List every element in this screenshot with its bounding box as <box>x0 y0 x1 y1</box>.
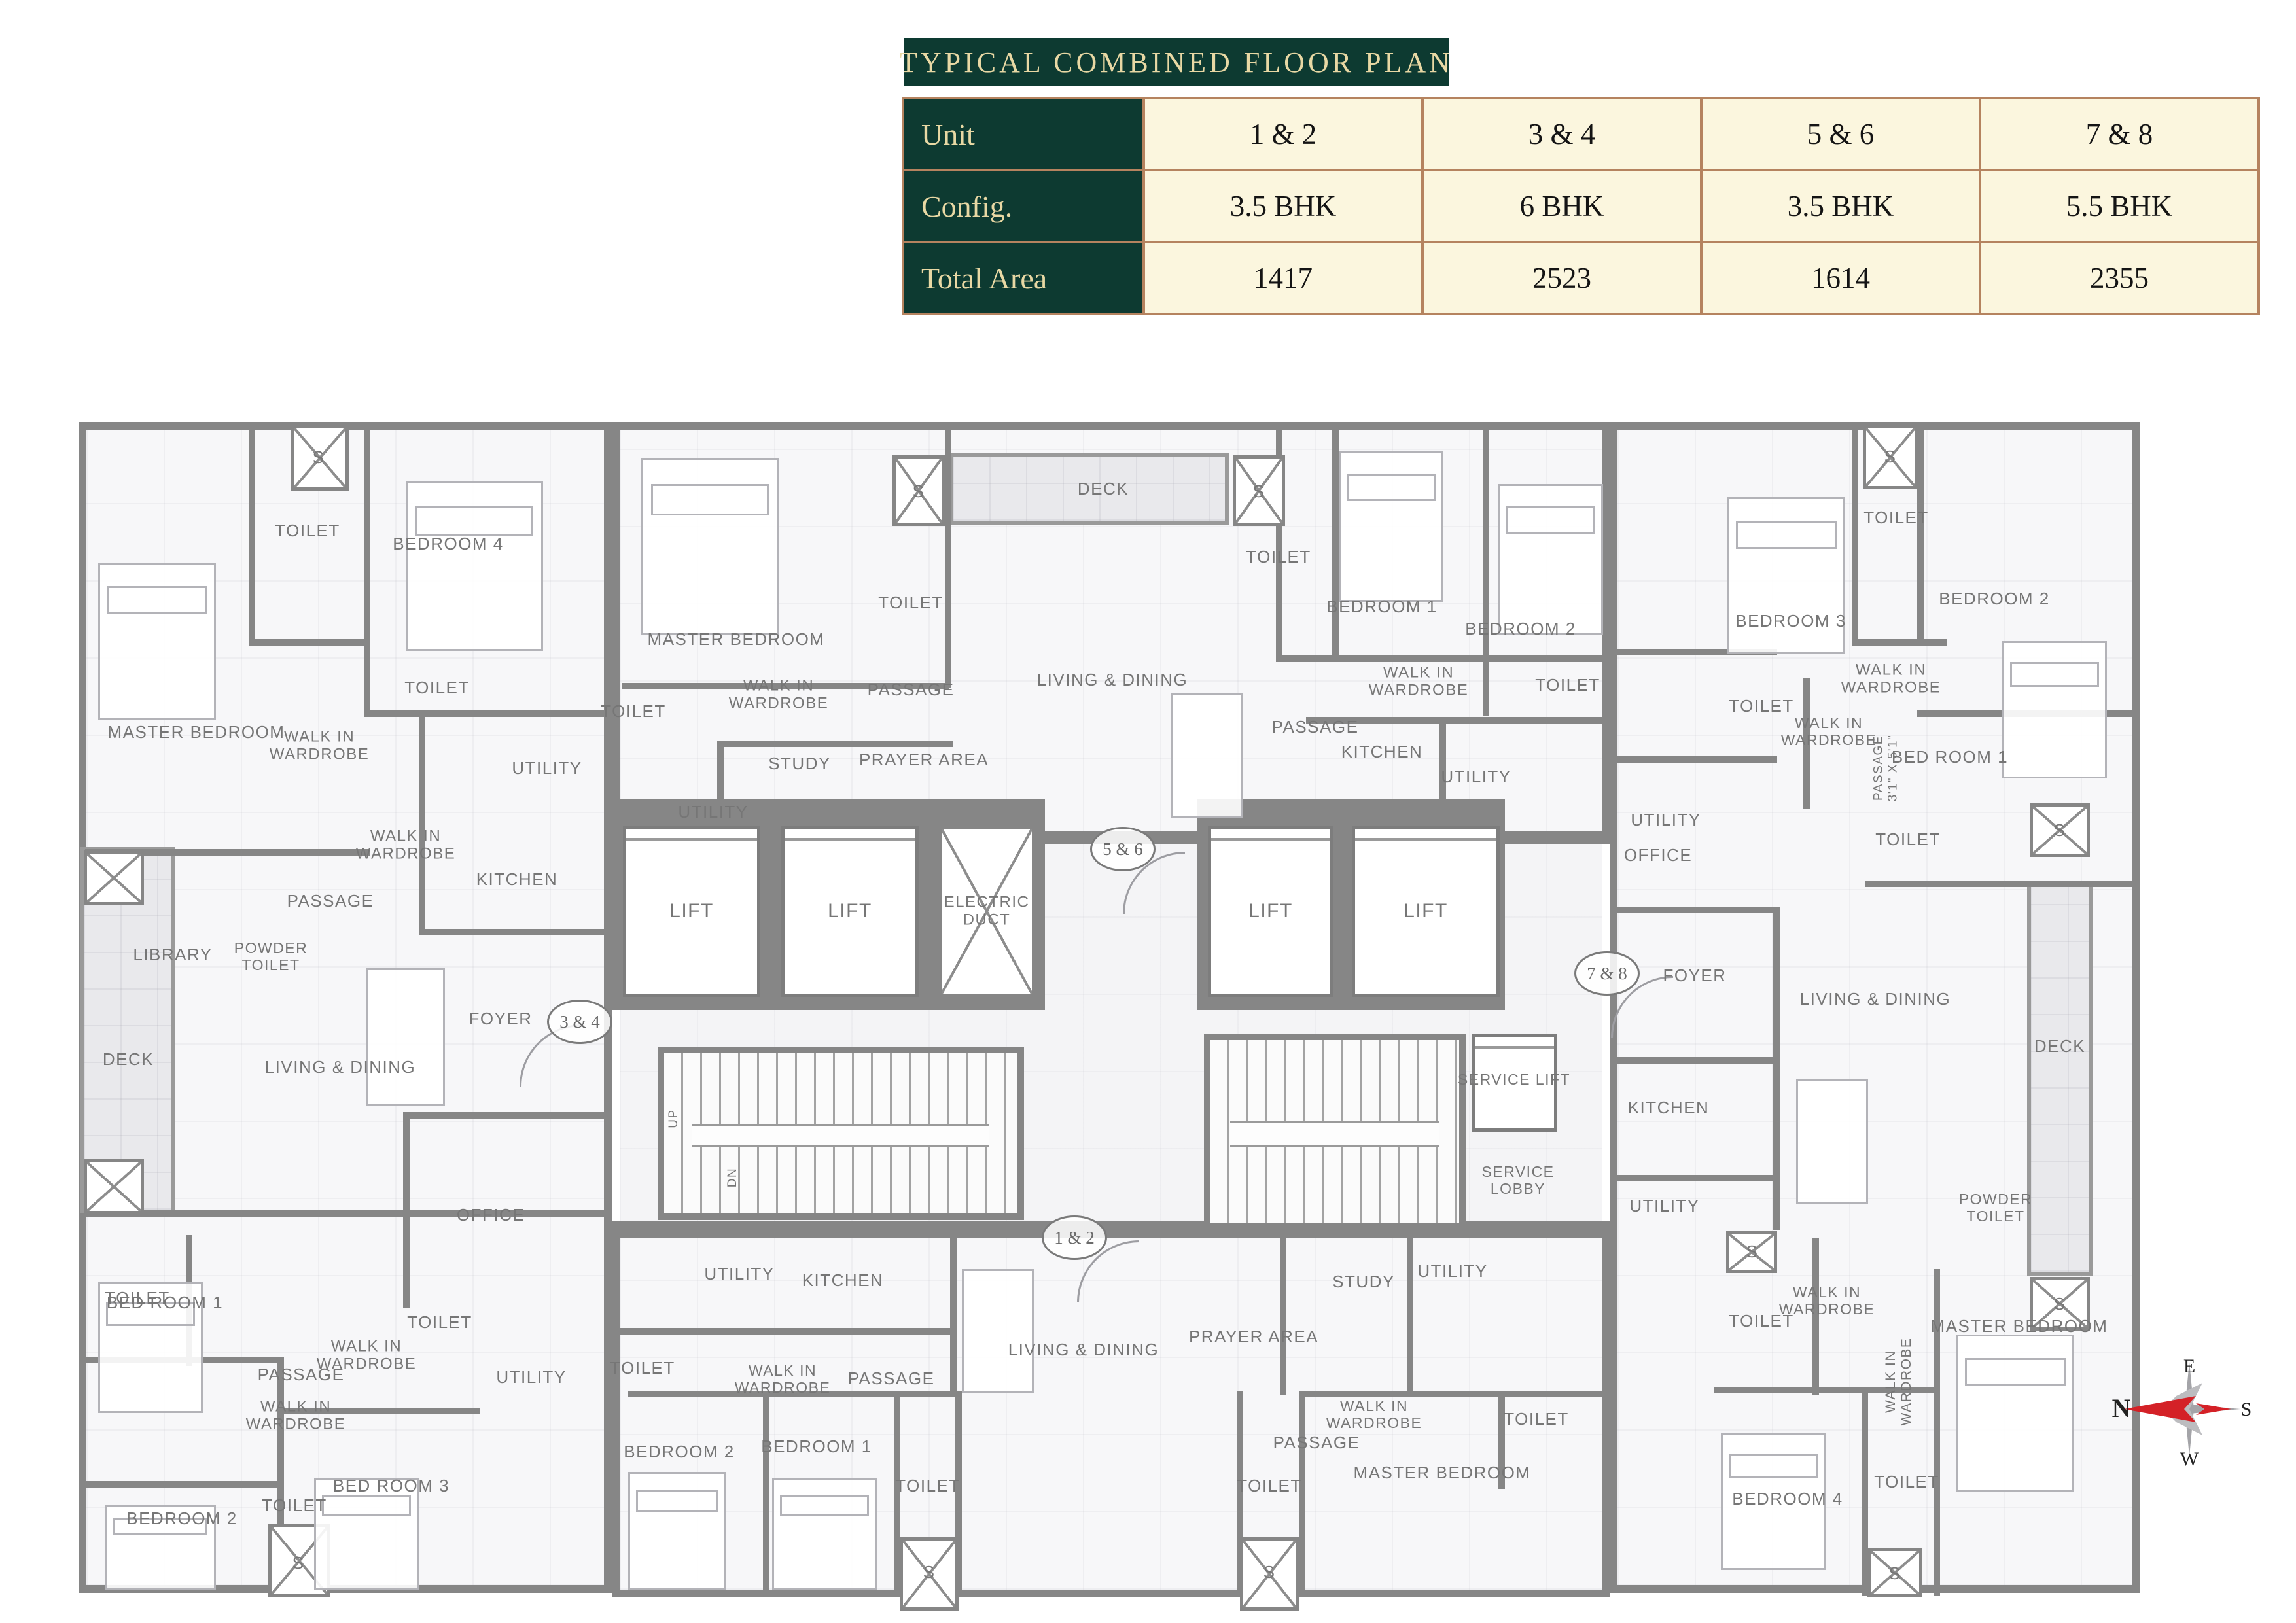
config-5-6: 3.5 BHK <box>1701 170 1980 242</box>
room-label: WALK IN WARDROBE <box>729 677 828 713</box>
dining-table <box>1171 693 1243 818</box>
room-label: PASSAGE <box>1272 718 1359 737</box>
wall <box>419 717 425 935</box>
wall <box>1852 639 1947 646</box>
room-label: LIVING & DINING <box>1800 990 1951 1009</box>
room-label: S <box>913 482 925 502</box>
room-label: UTILITY <box>1631 811 1701 830</box>
room-label: WALK IN WARDROBE <box>1883 1338 1915 1426</box>
room-label: BEDROOM 1 <box>1326 597 1438 617</box>
wall <box>1483 430 1489 716</box>
unit-entry-tag: 3 & 4 <box>547 1000 612 1044</box>
wall <box>612 1328 955 1335</box>
room-label: WALK IN WARDROBE <box>270 728 369 764</box>
room-label: POWDER TOILET <box>1959 1191 2033 1225</box>
service-shaft <box>84 1159 144 1214</box>
service-shaft <box>84 850 144 905</box>
room-label: MASTER BEDROOM <box>1931 1317 2108 1336</box>
wall <box>717 741 953 747</box>
room-label: BEDROOM 4 <box>1732 1490 1843 1509</box>
bed <box>641 458 779 635</box>
wall <box>403 1112 612 1119</box>
wall <box>1610 756 1777 763</box>
bed <box>1498 484 1603 635</box>
area-3-4: 2523 <box>1422 242 1701 314</box>
wall <box>1299 1391 1610 1397</box>
config-1-2: 3.5 BHK <box>1144 170 1422 242</box>
room-label: MASTER BEDROOM <box>1354 1463 1531 1483</box>
room-label: S <box>1746 1242 1759 1262</box>
room-label: ELECTRIC DUCT <box>944 894 1030 930</box>
room-label: TOILET <box>1729 697 1794 716</box>
room-label: TOILET <box>1535 676 1600 695</box>
room-label: TOILET <box>1237 1476 1302 1496</box>
wall <box>1773 907 1780 1230</box>
room-label: OFFICE <box>457 1206 525 1225</box>
room-label: TOILET <box>1504 1410 1569 1429</box>
room-label: KITCHEN <box>802 1271 884 1291</box>
room-label: WALK IN WARDROBE <box>1369 664 1468 700</box>
room-label: TOILET <box>407 1313 472 1333</box>
room-label: DN <box>726 1168 740 1187</box>
room-label: FOYER <box>1663 966 1726 986</box>
room-label: PASSAGE <box>848 1369 935 1389</box>
wall <box>364 710 612 717</box>
room-label: DECK <box>2034 1037 2085 1056</box>
room-label: TOILET <box>1863 508 1929 528</box>
staircase <box>1204 1034 1466 1230</box>
room-label: WALK IN WARDROBE <box>1841 661 1941 697</box>
unit-7-8: 7 & 8 <box>1980 98 2259 170</box>
room-label: UTILITY <box>704 1265 774 1284</box>
room-label: S <box>2054 1295 2066 1314</box>
room-label: LIFT <box>1248 900 1293 922</box>
area-7-8: 2355 <box>1980 242 2259 314</box>
wall <box>1332 430 1339 662</box>
room-label: LIVING & DINING <box>1008 1340 1159 1360</box>
compass-e: E <box>2183 1355 2195 1377</box>
compass-s: S <box>2241 1399 2252 1420</box>
unit-entry-tag: 7 & 8 <box>1574 951 1640 996</box>
row-header-unit: Unit <box>903 98 1144 170</box>
room-label: DECK <box>103 1050 154 1070</box>
room-label: LIVING & DINING <box>265 1058 416 1077</box>
room-label: UTILITY <box>512 759 582 778</box>
wall <box>1610 1057 1780 1064</box>
wall <box>945 430 951 688</box>
bed <box>406 481 543 651</box>
bed <box>1956 1335 2074 1492</box>
room-label: TOILET <box>610 1359 675 1378</box>
room-label: BED ROOM 1 <box>1892 748 2008 767</box>
room-label: LIBRARY <box>133 945 212 965</box>
room-label: KITCHEN <box>1341 742 1423 762</box>
unit-entry-tag: 1 & 2 <box>1042 1215 1107 1260</box>
room-label: BEDROOM 2 <box>126 1509 238 1529</box>
room-label: BEDROOM 3 <box>1735 612 1846 631</box>
room-label: TOILET <box>404 678 470 698</box>
room-label: PASSAGE 3'1" X 5'1" <box>1871 735 1899 802</box>
room-label: S <box>1889 1564 1901 1584</box>
room-label: KITCHEN <box>476 870 558 890</box>
room-label: BED ROOM 1 <box>107 1293 223 1313</box>
dining-table <box>366 968 445 1106</box>
wall <box>1917 430 1924 646</box>
room-label: TOILET <box>1874 1473 1939 1492</box>
bed <box>1339 451 1443 602</box>
room-label: PASSAGE <box>868 680 955 700</box>
area-5-6: 1614 <box>1701 242 1980 314</box>
room-label: TOILET <box>601 702 666 722</box>
room-label: S <box>292 1554 305 1573</box>
config-3-4: 6 BHK <box>1422 170 1701 242</box>
compass-n: N <box>2112 1393 2131 1423</box>
bed <box>2002 641 2107 778</box>
compass-rose: E S W N <box>2112 1353 2267 1469</box>
room-label: STUDY <box>768 754 831 774</box>
room-label: TOILET <box>878 593 944 613</box>
wall <box>419 929 615 935</box>
room-label: S <box>1253 482 1265 502</box>
room-label: UTILITY <box>1417 1262 1487 1282</box>
room-label: WALK IN WARDROBE <box>356 828 455 864</box>
bed <box>772 1478 877 1590</box>
area-1-2: 1417 <box>1144 242 1422 314</box>
room-label: TOILET <box>275 521 340 541</box>
room-label: WALK IN WARDROBE <box>1326 1397 1422 1431</box>
room-label: S <box>1263 1563 1276 1582</box>
room-label: SERVICE LOBBY <box>1481 1163 1554 1197</box>
wall <box>1407 1238 1413 1395</box>
room-label: POWDER TOILET <box>234 939 308 973</box>
room-label: MASTER BEDROOM <box>108 723 285 742</box>
wall <box>1865 881 2140 887</box>
room-label: WALK IN WARDROBE <box>735 1362 831 1396</box>
room-label: OFFICE <box>1624 846 1692 865</box>
unit-3-4: 3 & 4 <box>1422 98 1701 170</box>
room-label: PRAYER AREA <box>1189 1327 1318 1347</box>
room-label: BEDROOM 1 <box>761 1437 872 1457</box>
wall <box>403 1112 410 1308</box>
room-label: KITCHEN <box>1628 1098 1710 1118</box>
room-label: BED ROOM 3 <box>333 1476 450 1496</box>
room-label: LIFT <box>828 900 872 922</box>
staircase <box>658 1047 1024 1220</box>
room-label: S <box>313 448 325 468</box>
unit-1-2: 1 & 2 <box>1144 98 1422 170</box>
row-header-total-area: Total Area <box>903 242 1144 314</box>
room-label: TOILET <box>262 1496 327 1516</box>
wall <box>85 1481 284 1488</box>
wall <box>1610 907 1777 913</box>
room-label: TOILET <box>1875 830 1941 850</box>
bed <box>98 563 216 720</box>
room-label: FOYER <box>468 1009 532 1029</box>
table-row-total-area: Total Area 1417 2523 1614 2355 <box>903 242 2259 314</box>
room-label: LIFT <box>669 900 714 922</box>
room-label: UTILITY <box>496 1368 566 1387</box>
room-label: UTILITY <box>678 803 748 822</box>
room-label: WALK IN WARDROBE <box>246 1398 345 1434</box>
room-label: TOILET <box>895 1476 961 1496</box>
unit-entry-tag: 5 & 6 <box>1090 827 1156 871</box>
wall <box>85 1210 612 1217</box>
wall <box>950 1238 957 1395</box>
bed <box>628 1472 726 1590</box>
wall <box>364 430 370 715</box>
room-label: S <box>1884 447 1897 467</box>
wall <box>763 1391 769 1597</box>
config-7-8: 5.5 BHK <box>1980 170 2259 242</box>
room-label: UP <box>667 1109 681 1128</box>
table-row-config: Config. 3.5 BHK 6 BHK 3.5 BHK 5.5 BHK <box>903 170 2259 242</box>
dining-table <box>1796 1079 1868 1204</box>
room-label: PASSAGE <box>287 892 374 911</box>
row-header-config: Config. <box>903 170 1144 242</box>
wall <box>249 639 370 646</box>
room-label: BEDROOM 2 <box>1939 589 2050 609</box>
room-label: MASTER BEDROOM <box>648 630 825 650</box>
room-label: UTILITY <box>1629 1196 1699 1216</box>
page-title: TYPICAL COMBINED FLOOR PLAN <box>904 38 1449 86</box>
room-label: DECK <box>1078 480 1129 499</box>
wall <box>1276 655 1614 662</box>
dining-table <box>962 1269 1034 1393</box>
room-label: UTILITY <box>1441 767 1511 787</box>
room-label: BEDROOM 2 <box>624 1442 735 1462</box>
wall <box>1280 1238 1286 1395</box>
compass-w: W <box>2180 1448 2199 1469</box>
room-label: BEDROOM 4 <box>393 534 504 554</box>
room-label: S <box>2054 821 2066 841</box>
table-row-unit: Unit 1 & 2 3 & 4 5 & 6 7 & 8 <box>903 98 2259 170</box>
room-label: PASSAGE <box>1273 1433 1360 1453</box>
room-label: LIVING & DINING <box>1037 671 1188 690</box>
room-label: WALK IN WARDROBE <box>1781 714 1877 748</box>
unit-spec-table: Unit 1 & 2 3 & 4 5 & 6 7 & 8 Config. 3.5… <box>902 97 2260 315</box>
deck <box>2027 883 2093 1276</box>
wall <box>1610 1175 1780 1181</box>
room-label: PRAYER AREA <box>859 750 989 770</box>
wall <box>1852 430 1858 646</box>
unit-5-6: 5 & 6 <box>1701 98 1980 170</box>
room-label: LIFT <box>1404 900 1448 922</box>
room-label: TOILET <box>1246 548 1311 567</box>
room-label: STUDY <box>1332 1272 1395 1292</box>
room-label: WALK IN WARDROBE <box>317 1338 416 1374</box>
room-label: SERVICE LIFT <box>1458 1071 1570 1088</box>
room-label: BEDROOM 2 <box>1465 620 1576 639</box>
room-label: S <box>923 1563 936 1582</box>
wall <box>249 430 255 646</box>
room-label: WALK IN WARDROBE <box>1779 1283 1875 1318</box>
